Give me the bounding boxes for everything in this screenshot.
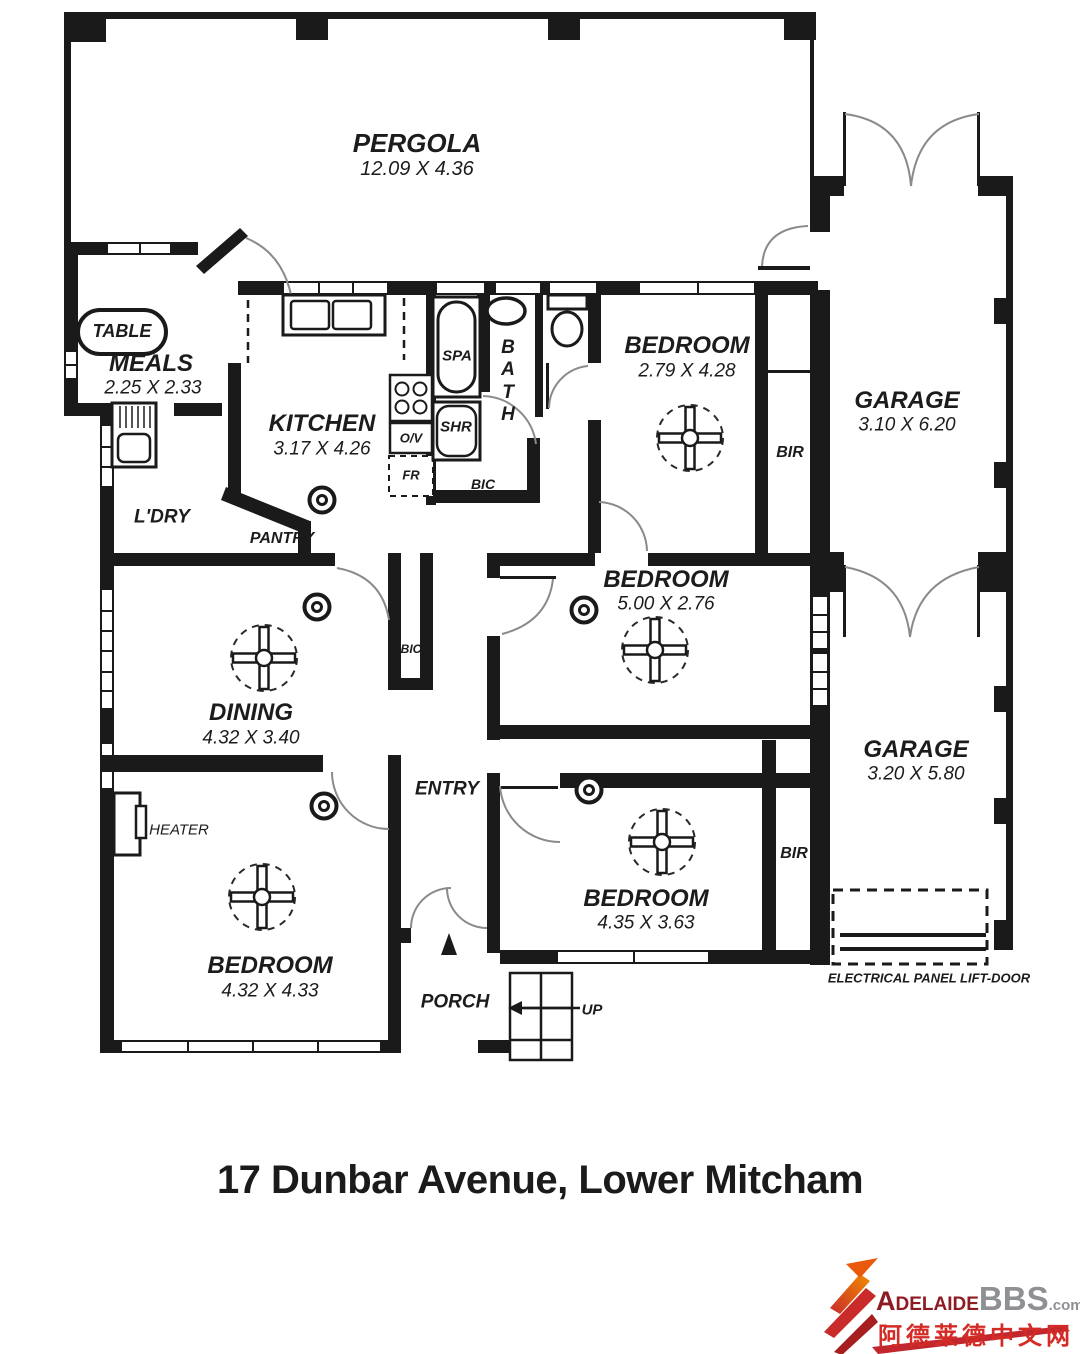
label-heater: HEATER xyxy=(149,823,209,838)
logo-tagline-chinese: 阿德莱德中文网 xyxy=(878,1316,1074,1351)
room-dims-bedroom3: 4.32 X 4.33 xyxy=(221,982,318,1001)
room-dims-meals: 2.25 X 2.33 xyxy=(104,379,201,398)
smoke-alarm-icon xyxy=(310,488,335,513)
room-label-pergola: PERGOLA xyxy=(353,130,482,156)
room-dims-kitchen: 3.17 X 4.26 xyxy=(273,440,370,459)
label-electrical-panel: ELECTRICAL PANEL LIFT-DOOR xyxy=(828,972,1030,985)
entry-arrow-icon xyxy=(441,933,457,955)
room-label-bedroom1: BEDROOM xyxy=(624,334,749,358)
smoke-alarm-icon xyxy=(312,794,337,819)
room-label-bedroom4: BEDROOM xyxy=(583,887,708,911)
logo-brand-secondary: BBS xyxy=(979,1280,1049,1317)
logo-brand-tld: .com xyxy=(1049,1297,1080,1314)
label-bir1: BIR xyxy=(776,445,804,461)
room-label-dining: DINING xyxy=(209,701,293,725)
label-fridge: FR xyxy=(402,469,419,482)
label-oven: O/V xyxy=(400,432,422,445)
address-title: 17 Dunbar Avenue, Lower Mitcham xyxy=(0,1158,1080,1203)
room-label-kitchen: KITCHEN xyxy=(269,412,376,436)
toilet-icon xyxy=(548,295,587,346)
label-laundry: L'DRY xyxy=(134,508,190,527)
room-dims-garage1: 3.10 X 6.20 xyxy=(858,416,955,435)
floor-plan-page: PERGOLA 12.09 X 4.36 MEALS 2.25 X 2.33 K… xyxy=(0,0,1080,1354)
room-label-garage1: GARAGE xyxy=(854,389,959,413)
watermark-logo: AdelaideBBS.com 阿德莱德中文网 xyxy=(820,1256,1076,1354)
door-arcs xyxy=(246,114,979,928)
ceiling-fan-icon xyxy=(657,405,723,471)
room-dims-bedroom1: 2.79 X 4.28 xyxy=(638,362,735,381)
label-entry: ENTRY xyxy=(415,780,479,799)
label-porch: PORCH xyxy=(421,993,490,1012)
label-bic-hall: BIC xyxy=(401,643,422,655)
label-bir2: BIR xyxy=(780,846,808,862)
stairs-icon xyxy=(508,973,580,1060)
cooktop-icon xyxy=(390,375,432,421)
smoke-alarm-icon xyxy=(577,778,602,803)
room-dims-pergola: 12.09 X 4.36 xyxy=(360,159,473,179)
room-label-meals: MEALS xyxy=(109,352,193,376)
label-pantry: PANTRY xyxy=(250,531,314,547)
floor-plan-drawing xyxy=(0,0,1080,1354)
ceiling-fan-icon xyxy=(629,809,695,875)
heater-icon xyxy=(114,793,146,855)
label-bic-bath: BIC xyxy=(471,477,495,491)
kitchen-sink-icon xyxy=(283,295,385,335)
label-table: TABLE xyxy=(93,322,152,340)
label-up: UP xyxy=(582,1003,603,1018)
room-dims-dining: 4.32 X 3.40 xyxy=(202,729,299,748)
ceiling-fan-icon xyxy=(231,625,297,691)
smoke-alarm-icon xyxy=(305,595,330,620)
ceiling-fan-icon xyxy=(622,617,688,683)
room-label-garage2: GARAGE xyxy=(863,738,968,762)
label-spa: SPA xyxy=(442,349,472,364)
room-label-bedroom2: BEDROOM xyxy=(603,568,728,592)
logo-brand-primary: Adelaide xyxy=(876,1286,979,1316)
laundry-trough-icon xyxy=(112,403,156,467)
basin-icon xyxy=(487,298,525,324)
label-shower: SHR xyxy=(440,420,472,435)
room-label-bedroom3: BEDROOM xyxy=(207,954,332,978)
ceiling-fan-icon xyxy=(229,864,295,930)
electrical-panel-outline xyxy=(833,890,987,964)
logo-brand: AdelaideBBS.com xyxy=(876,1280,1080,1318)
room-dims-bedroom2: 5.00 X 2.76 xyxy=(617,595,714,614)
smoke-alarm-icon xyxy=(572,598,597,623)
room-dims-garage2: 3.20 X 5.80 xyxy=(867,765,964,784)
room-dims-bedroom4: 4.35 X 3.63 xyxy=(597,914,694,933)
interior-walls xyxy=(100,112,986,1053)
label-bath: BATH xyxy=(497,337,519,427)
